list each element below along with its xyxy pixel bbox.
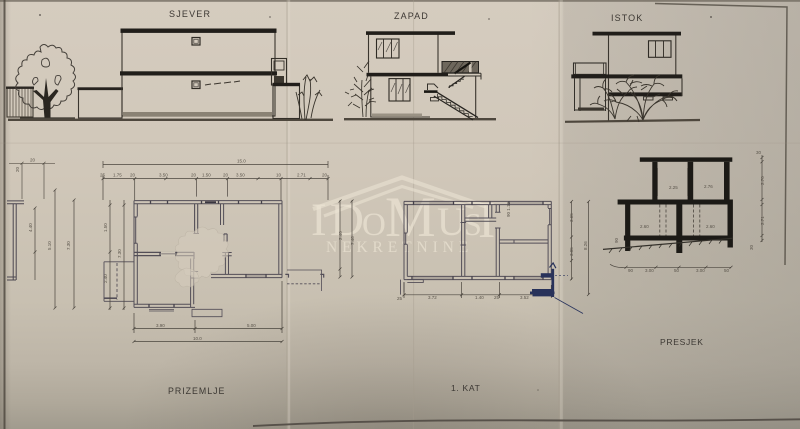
svg-text:5.00: 5.00 (247, 323, 256, 328)
svg-text:3.05: 3.05 (569, 247, 574, 256)
svg-text:1.75: 1.75 (113, 173, 122, 178)
svg-text:15.0: 15.0 (237, 159, 246, 164)
svg-text:90: 90 (628, 268, 634, 273)
svg-text:1. KAT: 1. KAT (451, 383, 481, 393)
svg-text:3.90: 3.90 (156, 323, 165, 328)
svg-text:10: 10 (276, 173, 282, 178)
svg-text:3.52: 3.52 (520, 295, 529, 300)
svg-text:3.72: 3.72 (428, 295, 437, 300)
svg-text:50: 50 (674, 268, 680, 273)
svg-text:50: 50 (724, 268, 730, 273)
svg-text:20: 20 (191, 173, 197, 178)
svg-text:20: 20 (15, 166, 20, 172)
svg-text:2.71: 2.71 (760, 216, 765, 225)
svg-text:2.60: 2.60 (640, 224, 649, 229)
svg-text:7.30: 7.30 (66, 241, 71, 250)
svg-text:2.40: 2.40 (338, 231, 343, 240)
svg-text:20: 20 (223, 173, 229, 178)
svg-text:SJEVER: SJEVER (169, 9, 211, 19)
svg-text:I: I (311, 194, 327, 246)
svg-text:PRIZEMLJE: PRIZEMLJE (168, 386, 225, 396)
svg-text:I: I (478, 192, 495, 249)
svg-text:1.40: 1.40 (475, 295, 484, 300)
svg-text:20: 20 (30, 158, 36, 163)
svg-text:2.76: 2.76 (704, 184, 713, 189)
svg-text:25: 25 (494, 295, 500, 300)
svg-text:3.50: 3.50 (236, 173, 245, 178)
svg-text:ZAPAD: ZAPAD (394, 11, 429, 21)
svg-text:2.40: 2.40 (103, 274, 108, 283)
svg-text:4.40: 4.40 (28, 223, 33, 232)
svg-text:30: 30 (756, 150, 762, 155)
svg-text:7.46: 7.46 (350, 236, 355, 245)
svg-text:ISTOK: ISTOK (611, 13, 643, 23)
svg-text:3.00: 3.00 (696, 268, 705, 273)
svg-text:25: 25 (397, 296, 403, 301)
svg-text:90: 90 (614, 237, 619, 243)
svg-text:3.65: 3.65 (569, 213, 574, 222)
svg-text:2.70: 2.70 (760, 176, 765, 185)
svg-text:O: O (362, 207, 386, 243)
svg-text:1.50: 1.50 (202, 173, 211, 178)
svg-text:30: 30 (749, 244, 754, 250)
svg-text:20: 20 (130, 173, 136, 178)
svg-text:7.30: 7.30 (117, 249, 122, 258)
svg-text:20: 20 (322, 173, 328, 178)
svg-text:1.50: 1.50 (103, 223, 108, 232)
svg-text:25: 25 (100, 173, 106, 178)
svg-text:90 1.10: 90 1.10 (506, 201, 511, 217)
svg-text:3.50: 3.50 (159, 173, 168, 178)
svg-text:3.00: 3.00 (645, 268, 654, 273)
svg-text:NEKRETNINE: NEKRETNINE (326, 239, 473, 256)
svg-text:10.0: 10.0 (193, 336, 202, 341)
svg-text:8.26: 8.26 (583, 241, 588, 250)
svg-text:2.60: 2.60 (706, 224, 715, 229)
svg-text:5.10: 5.10 (47, 241, 52, 250)
svg-text:2.25: 2.25 (669, 185, 678, 190)
svg-text:2.71: 2.71 (297, 173, 306, 178)
svg-text:PRESJEK: PRESJEK (660, 337, 704, 347)
